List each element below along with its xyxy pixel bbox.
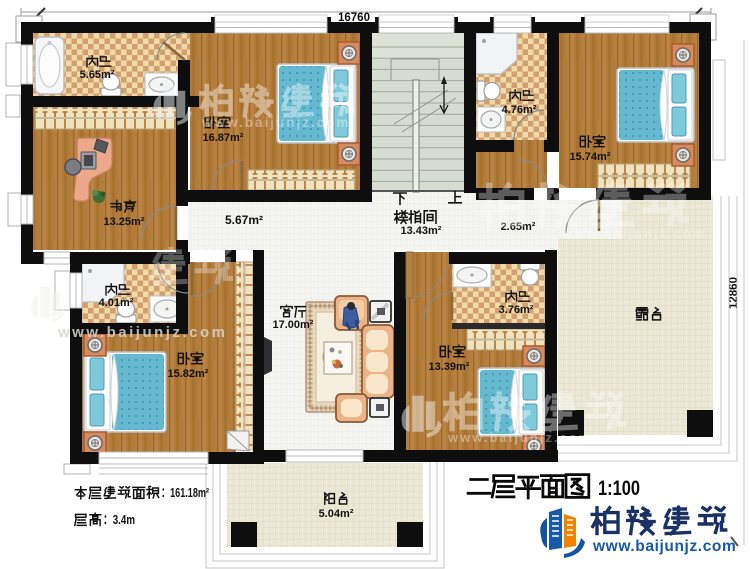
- svg-text:4.76m²: 4.76m²: [502, 104, 537, 116]
- svg-text:5.67m²: 5.67m²: [225, 213, 263, 227]
- svg-text:www.baijunjz.com: www.baijunjz.com: [57, 324, 227, 341]
- svg-text:15.82m²: 15.82m²: [168, 368, 209, 380]
- svg-text:3.76m²: 3.76m²: [499, 304, 534, 316]
- svg-text:5.04m²: 5.04m²: [319, 508, 354, 520]
- svg-text:5.65m²: 5.65m²: [80, 69, 115, 81]
- svg-text:www.baijunjz.com: www.baijunjz.com: [561, 226, 706, 241]
- svg-text:15.74m²: 15.74m²: [570, 151, 611, 163]
- svg-text:：3.4m: ：3.4m: [103, 512, 135, 527]
- svg-text:1:100: 1:100: [598, 476, 640, 500]
- svg-text:4.01m²: 4.01m²: [99, 297, 134, 309]
- svg-text:13.43m²: 13.43m²: [401, 225, 442, 237]
- svg-text:13.39m²: 13.39m²: [429, 361, 470, 373]
- svg-text:www.baijunjz.com: www.baijunjz.com: [201, 115, 351, 130]
- svg-text:www.baijunjz.com: www.baijunjz.com: [447, 430, 592, 445]
- svg-text:：161.18m²: ：161.18m²: [161, 485, 209, 500]
- svg-text:www.baijunjz.com: www.baijunjz.com: [592, 538, 736, 555]
- svg-text:13.25m²: 13.25m²: [104, 216, 145, 228]
- svg-text:16.87m²: 16.87m²: [203, 132, 244, 144]
- svg-text:12860: 12860: [728, 277, 740, 309]
- svg-text:17.00m²: 17.00m²: [273, 319, 314, 331]
